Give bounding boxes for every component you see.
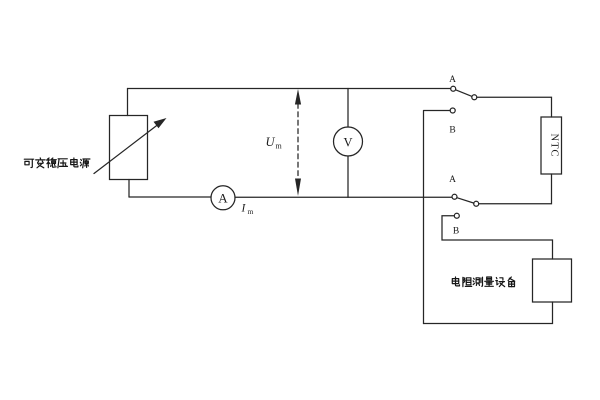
- svg-text:V: V: [343, 135, 352, 149]
- svg-text:B: B: [453, 227, 459, 237]
- svg-text:B: B: [449, 126, 455, 136]
- svg-text:m: m: [248, 207, 254, 216]
- svg-text:m: m: [276, 141, 283, 150]
- svg-text:A: A: [449, 75, 456, 85]
- svg-text:A: A: [449, 175, 456, 185]
- svg-text:NTC: NTC: [549, 134, 560, 158]
- svg-text:A: A: [218, 191, 228, 206]
- svg-text:U: U: [266, 135, 276, 149]
